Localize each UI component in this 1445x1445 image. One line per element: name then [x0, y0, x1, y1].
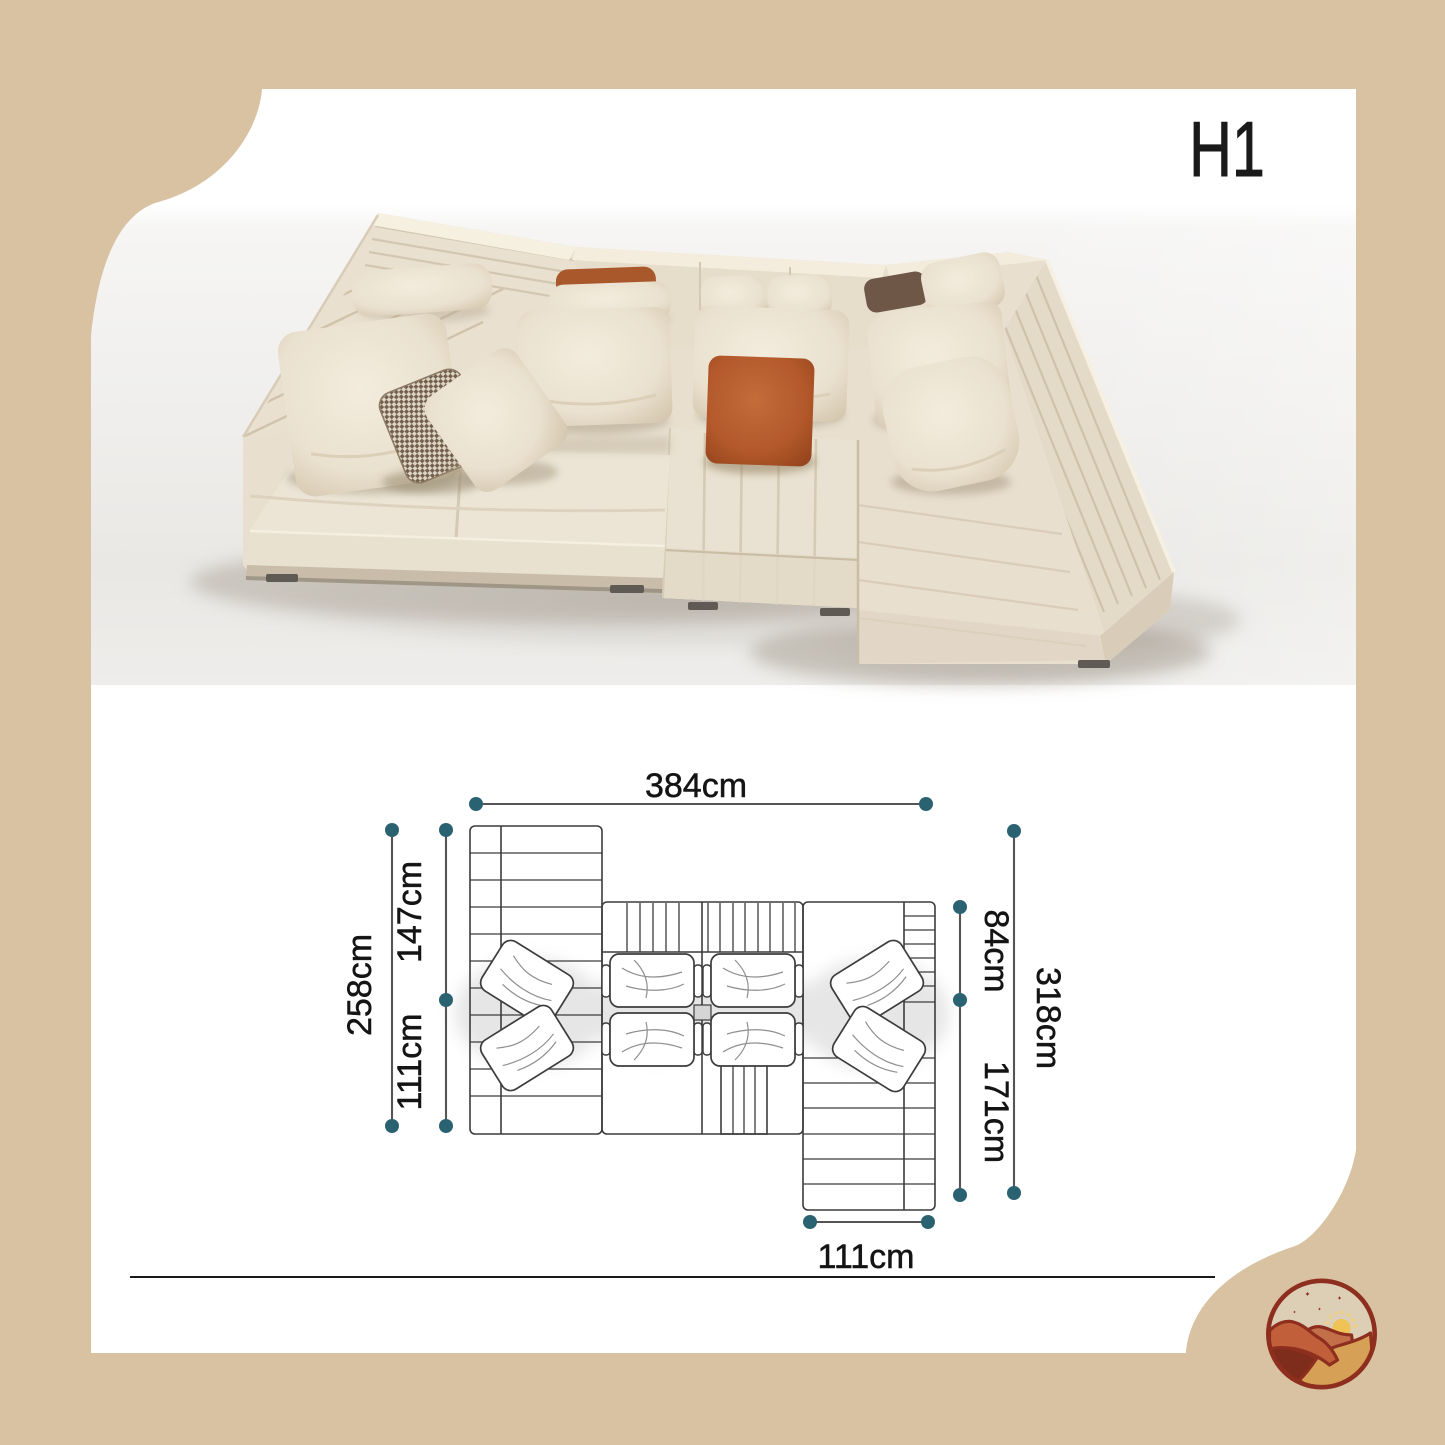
svg-text:171cm: 171cm	[977, 1061, 1015, 1163]
svg-text:111cm: 111cm	[817, 1238, 914, 1276]
svg-text:111cm: 111cm	[391, 1013, 429, 1110]
svg-text:84cm: 84cm	[977, 909, 1015, 992]
svg-text:318cm: 318cm	[1029, 967, 1067, 1069]
svg-text:147cm: 147cm	[391, 861, 429, 963]
svg-text:258cm: 258cm	[341, 934, 379, 1036]
svg-text:H1: H1	[1189, 105, 1265, 193]
svg-text:384cm: 384cm	[645, 767, 747, 805]
